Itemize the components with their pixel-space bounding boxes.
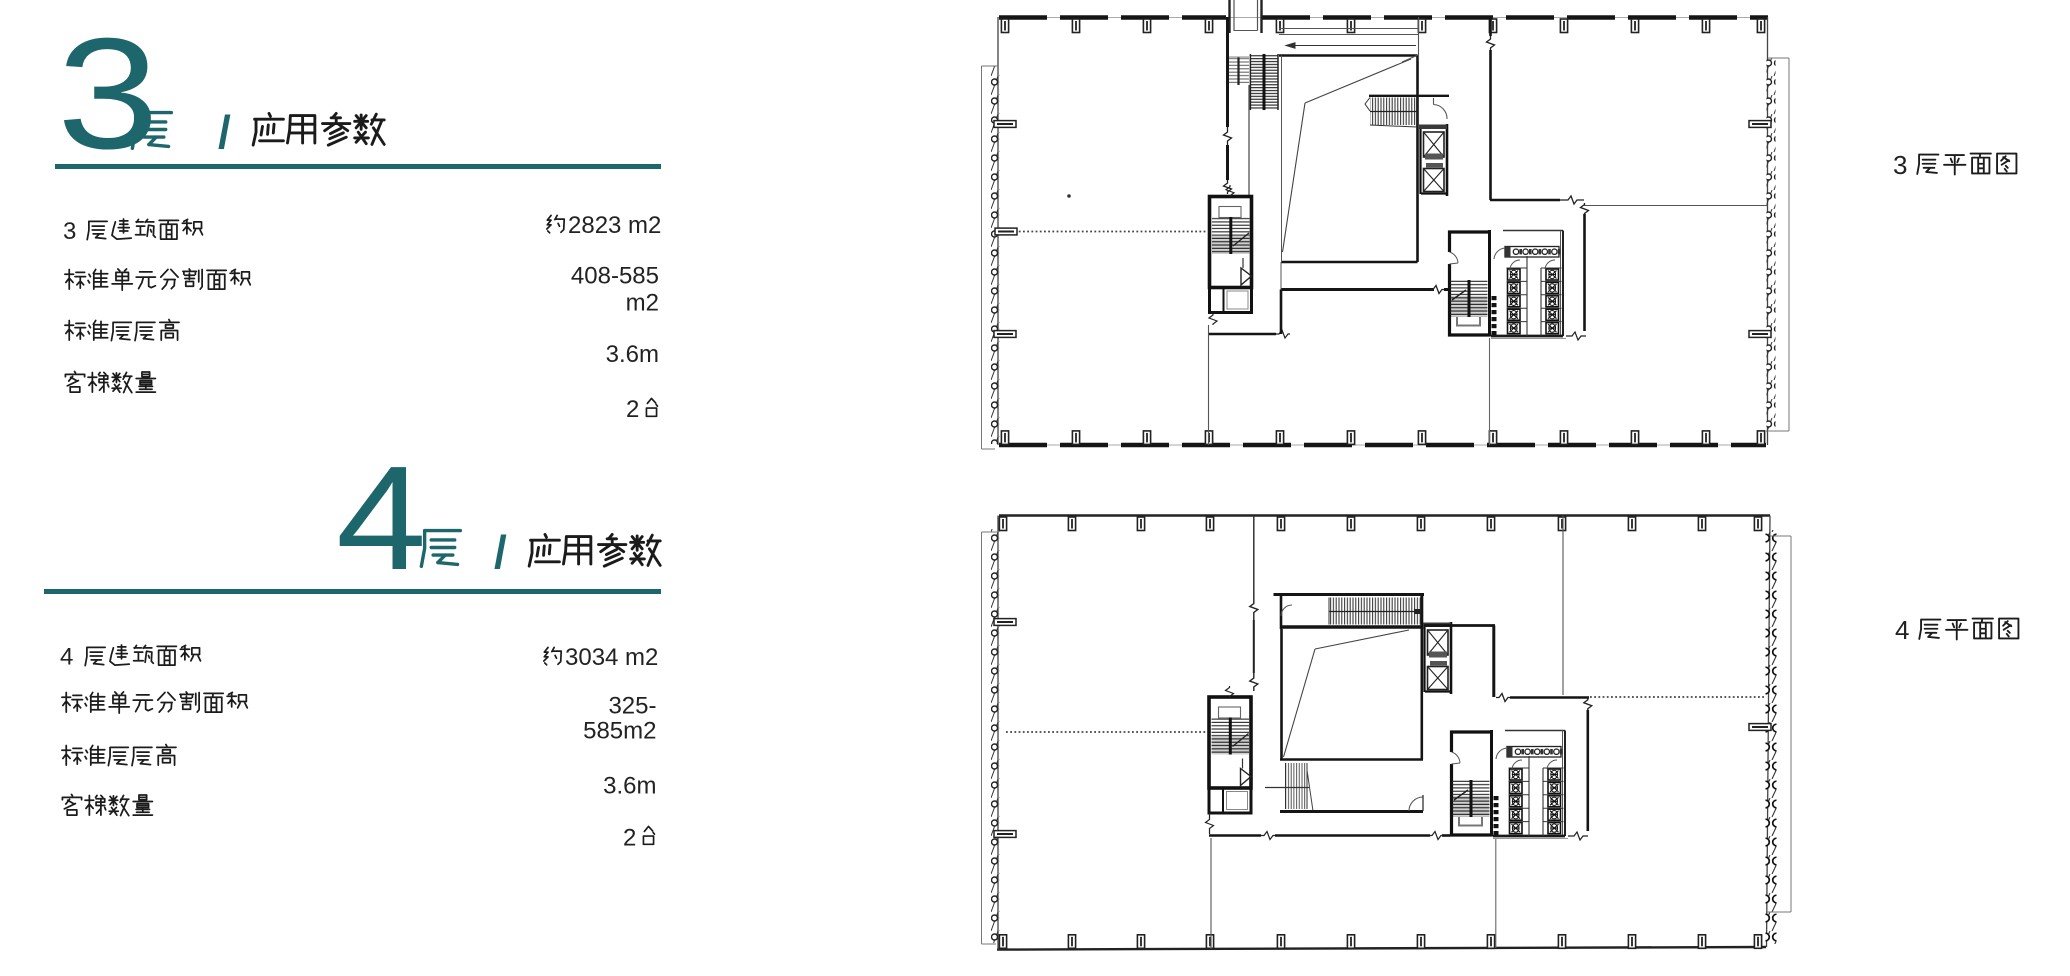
svg-text:2: 2 (623, 825, 636, 852)
svg-text:3.6m: 3.6m (606, 341, 659, 368)
svg-text:m2: m2 (626, 290, 659, 317)
svg-text:3: 3 (57, 6, 159, 182)
svg-text:/: / (218, 106, 231, 158)
svg-text:3.6m: 3.6m (603, 773, 656, 800)
svg-text:325-: 325- (608, 693, 656, 720)
svg-text:2823 m2: 2823 m2 (568, 212, 661, 239)
svg-text:/: / (494, 526, 507, 578)
svg-text:4: 4 (336, 435, 427, 601)
svg-text:2: 2 (626, 396, 639, 423)
svg-text:3034 m2: 3034 m2 (565, 644, 658, 671)
svg-text:408-585: 408-585 (571, 263, 659, 290)
svg-text:4: 4 (60, 644, 73, 671)
svg-text:3: 3 (1893, 150, 1907, 180)
svg-text:585m2: 585m2 (583, 718, 656, 745)
svg-text:3: 3 (63, 218, 76, 245)
svg-text:4: 4 (1895, 615, 1909, 645)
